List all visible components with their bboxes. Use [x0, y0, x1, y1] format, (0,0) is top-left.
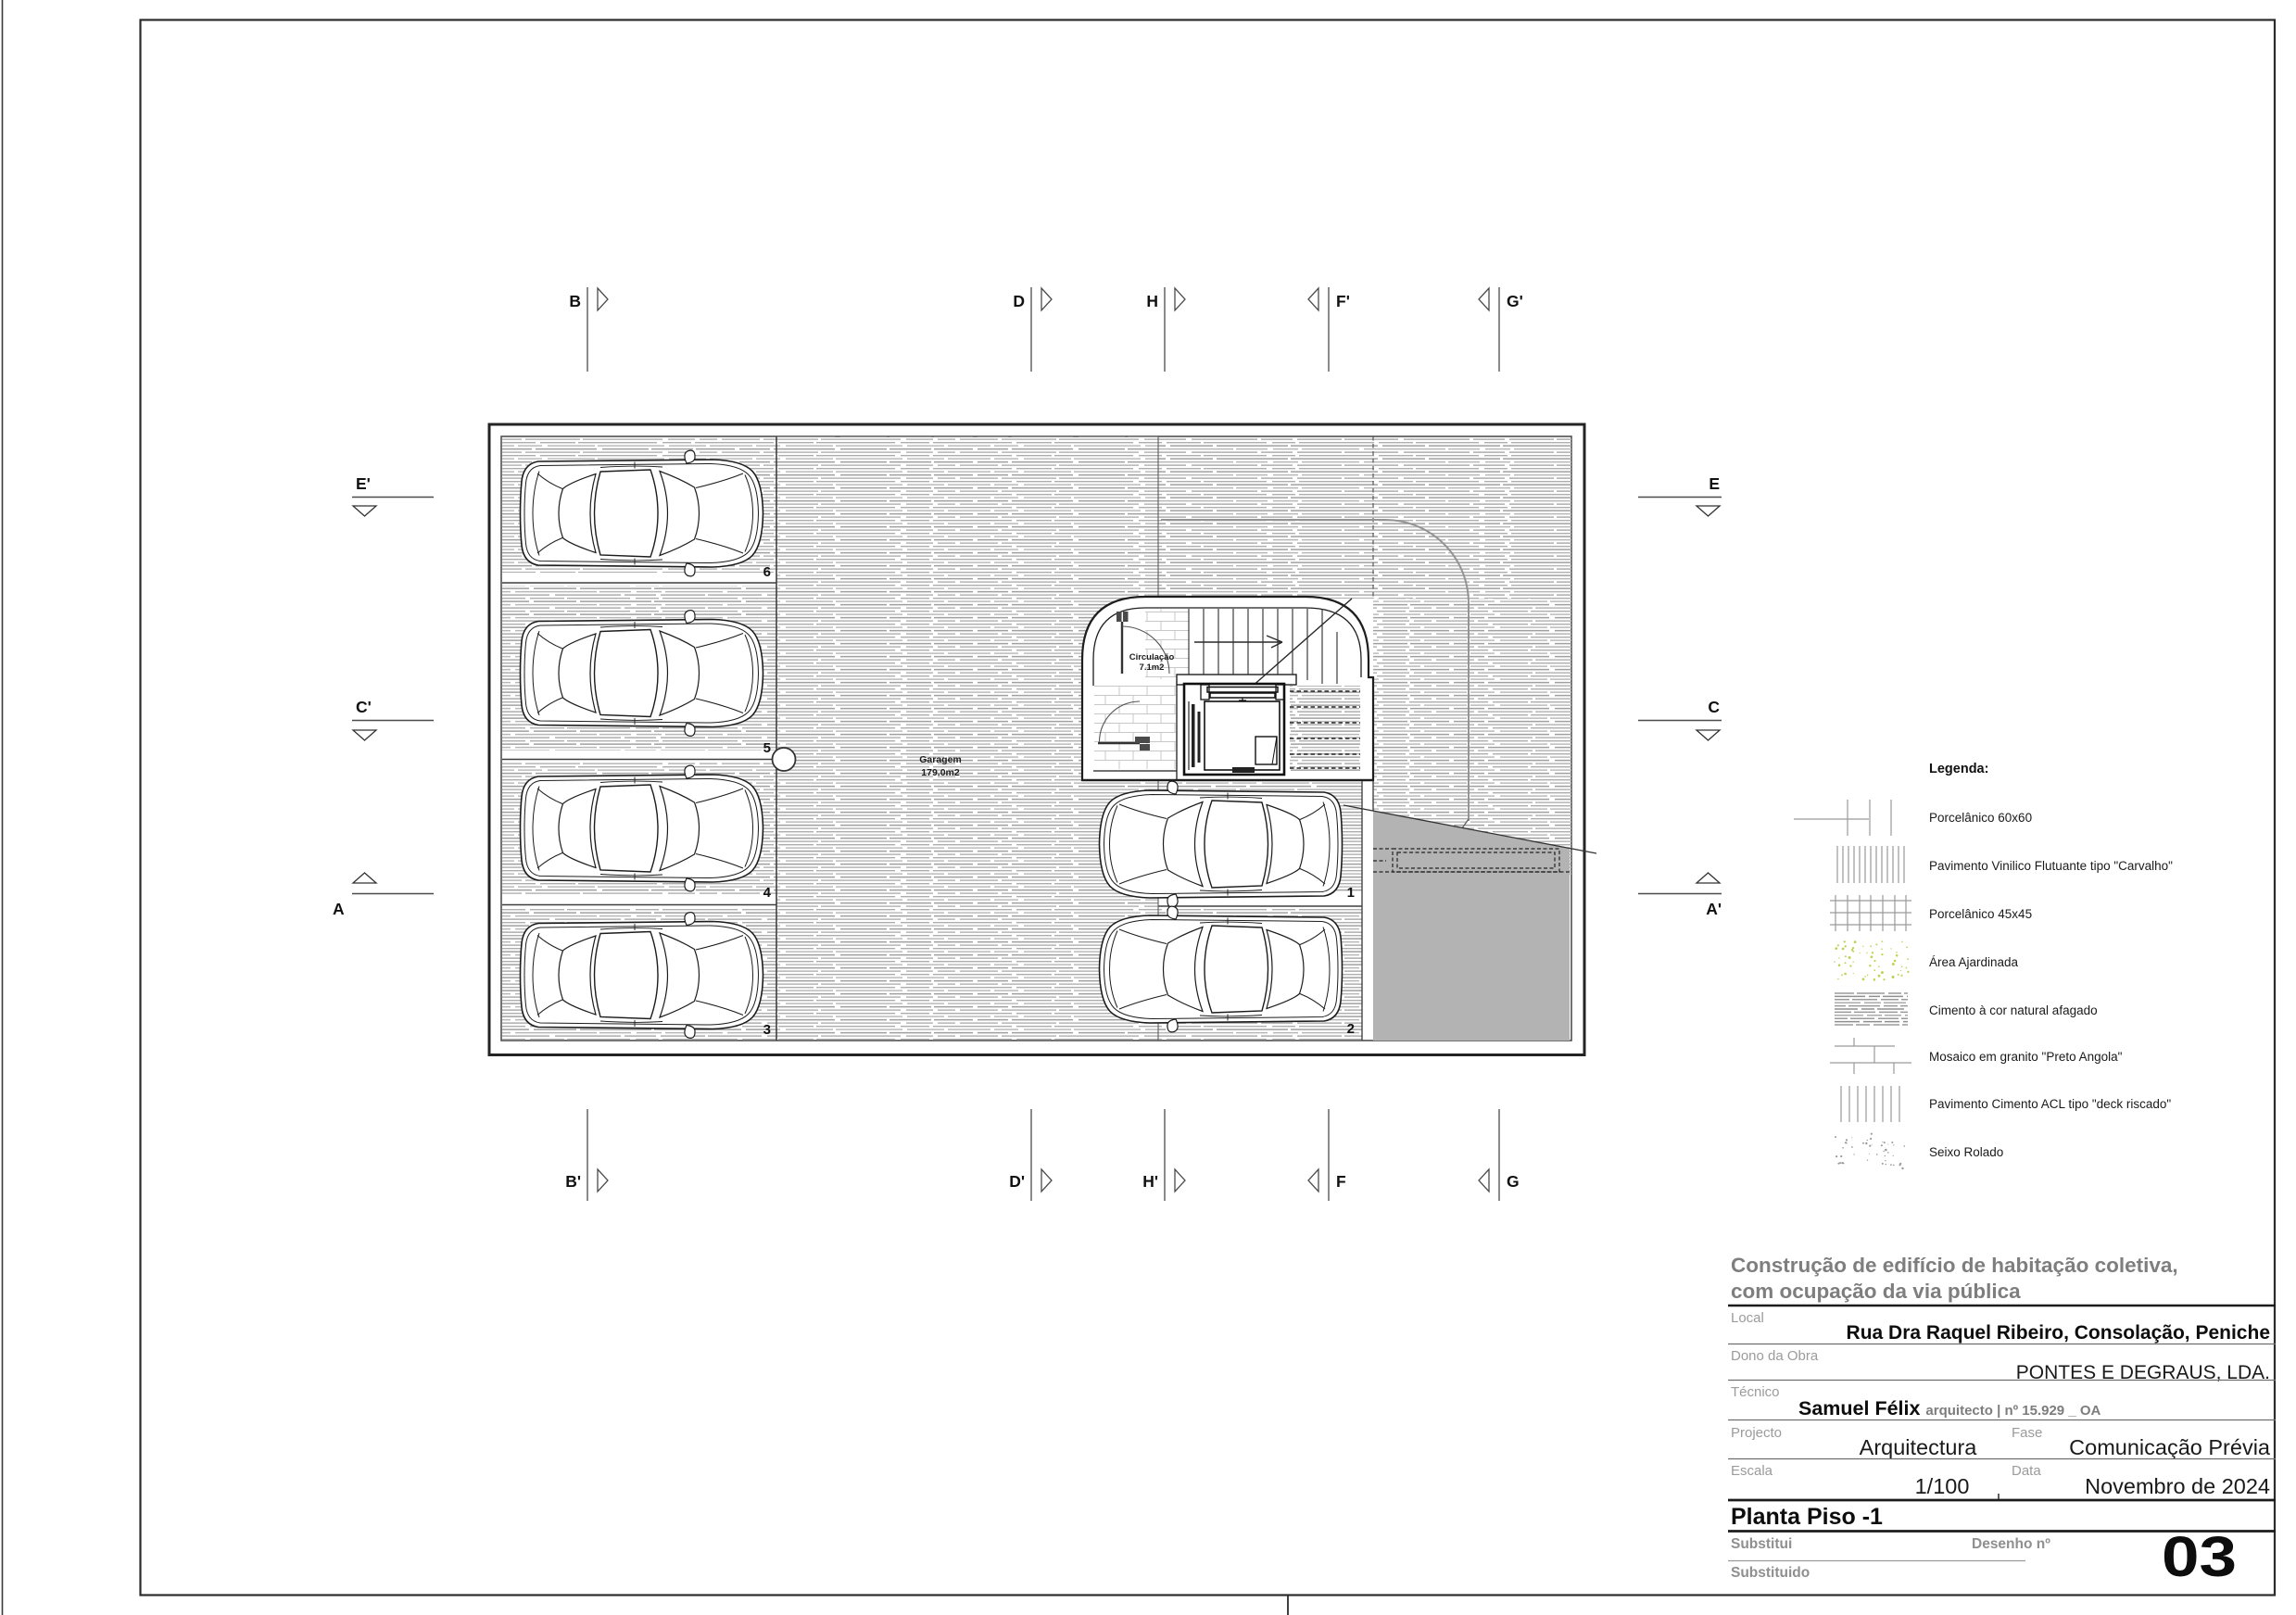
svg-text:7.1m2: 7.1m2 — [1140, 662, 1165, 673]
svg-text:1: 1 — [1347, 885, 1355, 901]
svg-text:E: E — [1709, 474, 1720, 493]
svg-text:4: 4 — [763, 885, 772, 901]
svg-text:Fase: Fase — [2012, 1425, 2042, 1441]
svg-text:A: A — [333, 900, 345, 918]
svg-text:Arquitectura: Arquitectura — [1860, 1435, 1978, 1459]
svg-text:Dono da Obra: Dono da Obra — [1731, 1348, 1819, 1364]
svg-text:Escala: Escala — [1731, 1463, 1773, 1479]
svg-text:D: D — [1013, 292, 1025, 310]
svg-text:Substituido: Substituido — [1731, 1565, 1810, 1581]
svg-text:Comunicação Prévia: Comunicação Prévia — [2069, 1435, 2271, 1459]
svg-text:Técnico: Técnico — [1731, 1384, 1780, 1400]
svg-text:1/100: 1/100 — [1915, 1474, 1970, 1498]
svg-text:H': H' — [1142, 1172, 1158, 1191]
svg-text:G: G — [1507, 1172, 1520, 1191]
svg-text:B': B' — [565, 1172, 581, 1191]
svg-text:Local: Local — [1731, 1310, 1764, 1326]
svg-text:D': D' — [1009, 1172, 1025, 1191]
svg-text:Projecto: Projecto — [1731, 1425, 1782, 1441]
svg-text:Substitui: Substitui — [1731, 1536, 1792, 1552]
svg-text:C: C — [1708, 698, 1720, 716]
svg-text:Cimento à cor natural afagado: Cimento à cor natural afagado — [1929, 1003, 2098, 1017]
svg-text:E': E' — [356, 474, 371, 493]
svg-text:6: 6 — [763, 564, 771, 580]
svg-text:3: 3 — [763, 1022, 771, 1038]
svg-text:F': F' — [1336, 292, 1350, 310]
svg-text:179.0m2: 179.0m2 — [921, 767, 960, 778]
svg-text:Novembro de 2024: Novembro de 2024 — [2085, 1474, 2270, 1498]
svg-text:Mosaico em granito "Preto Ango: Mosaico em granito "Preto Angola" — [1929, 1050, 2123, 1064]
svg-text:Porcelânico 60x60: Porcelânico 60x60 — [1929, 811, 2032, 825]
svg-text:2: 2 — [1347, 1021, 1355, 1037]
svg-text:Porcelânico 45x45: Porcelânico 45x45 — [1929, 907, 2032, 921]
svg-text:Rua Dra Raquel Ribeiro, Consol: Rua Dra Raquel Ribeiro, Consolação, Peni… — [1847, 1322, 2270, 1344]
svg-text:Pavimento Cimento ACL tipo "de: Pavimento Cimento ACL tipo "deck riscado… — [1929, 1097, 2171, 1111]
svg-text:03: 03 — [2162, 1525, 2237, 1588]
svg-text:Garagem: Garagem — [919, 754, 962, 765]
svg-text:Planta Piso -1: Planta Piso -1 — [1731, 1504, 1883, 1530]
svg-text:5: 5 — [763, 740, 771, 756]
svg-text:Seixo Rolado: Seixo Rolado — [1929, 1145, 2003, 1159]
svg-text:B: B — [569, 292, 581, 310]
svg-text:Construção de edifício de habi: Construção de edifício de habitação cole… — [1731, 1254, 2178, 1277]
svg-text:Legenda:: Legenda: — [1929, 762, 1988, 776]
svg-text:Desenho nº: Desenho nº — [1972, 1536, 2050, 1552]
svg-text:Área Ajardinada: Área Ajardinada — [1929, 955, 2019, 969]
svg-text:G': G' — [1507, 292, 1523, 310]
svg-text:Data: Data — [2012, 1463, 2041, 1479]
svg-text:H: H — [1146, 292, 1158, 310]
svg-text:com ocupação da via pública: com ocupação da via pública — [1731, 1280, 2021, 1303]
svg-text:A': A' — [1706, 900, 1722, 918]
svg-text:F: F — [1336, 1172, 1346, 1191]
svg-text:Pavimento Vinilico Flutuante t: Pavimento Vinilico Flutuante tipo "Carva… — [1929, 859, 2173, 873]
svg-text:C': C' — [356, 698, 372, 716]
